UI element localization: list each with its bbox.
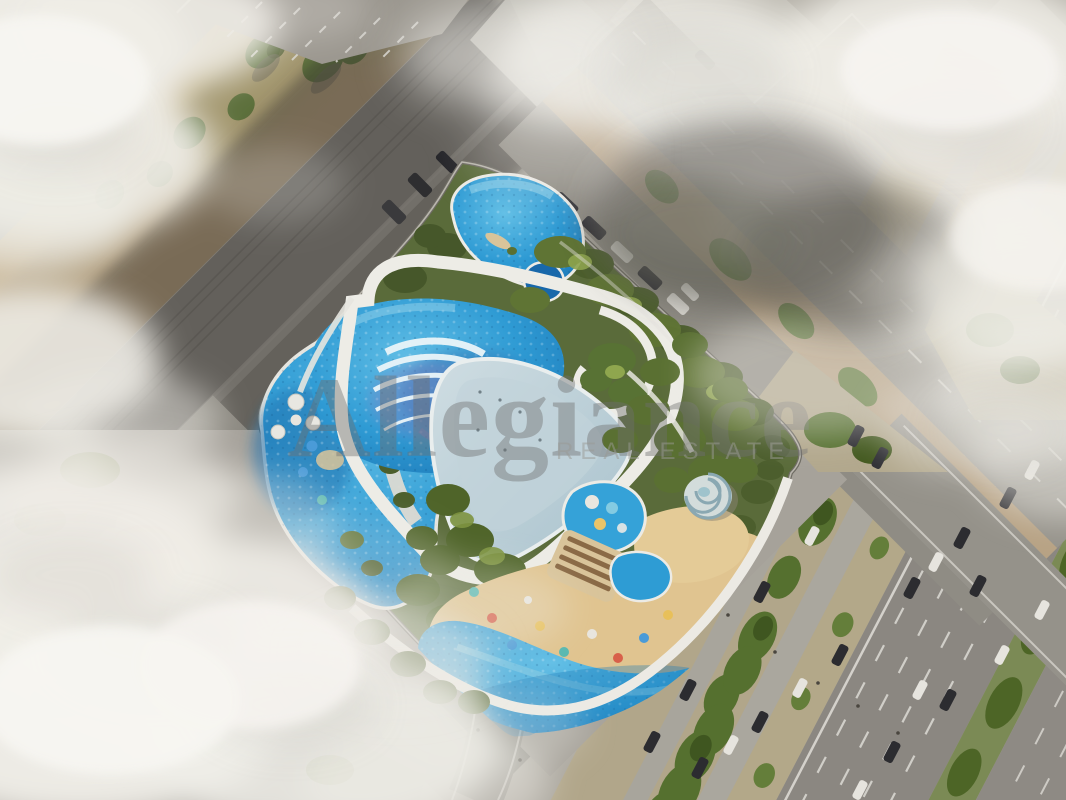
svg-text:REAL ESTATE: REAL ESTATE: [556, 438, 791, 465]
